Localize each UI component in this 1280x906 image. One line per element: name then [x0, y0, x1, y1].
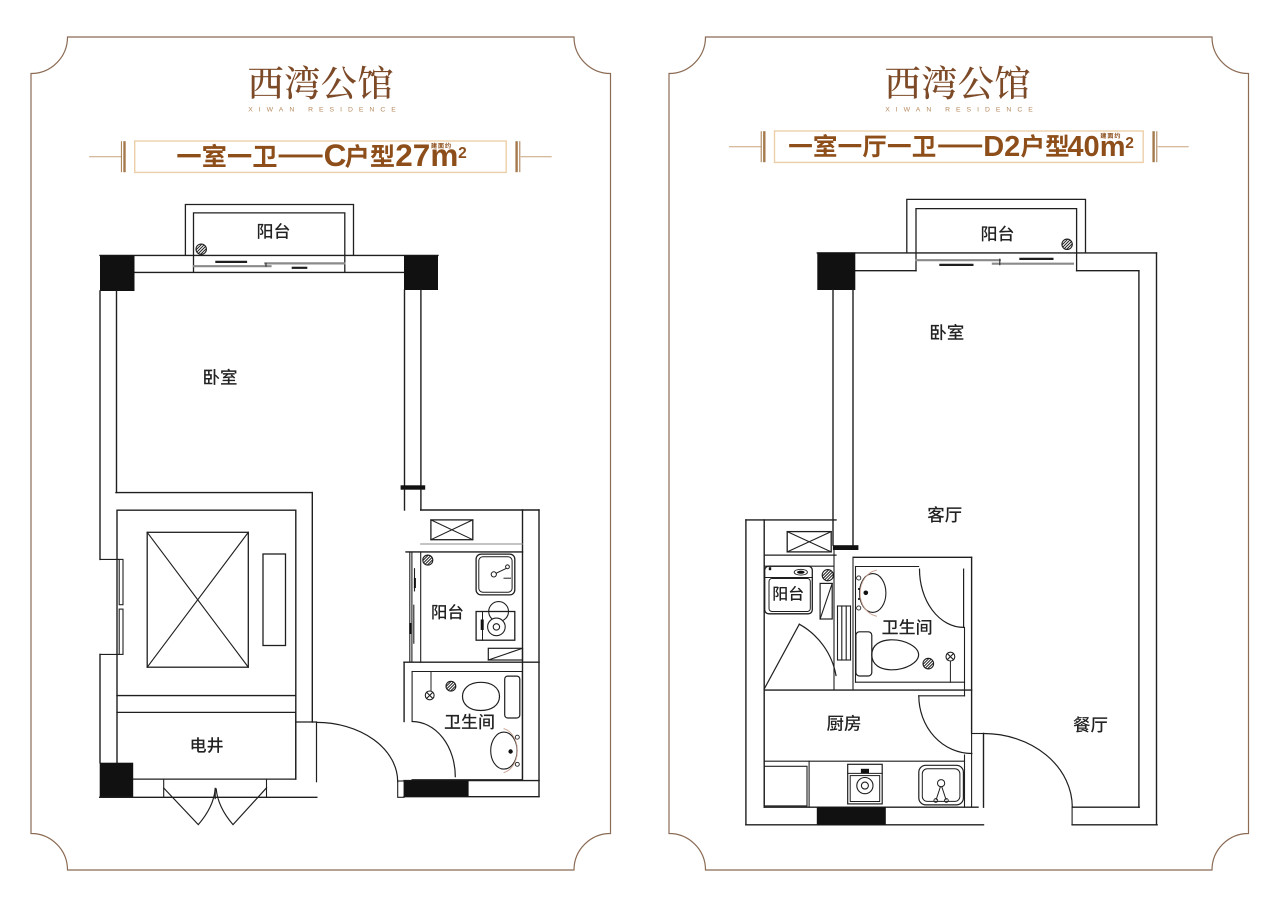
- svg-text:40: 40: [1067, 131, 1099, 163]
- svg-text:2: 2: [1125, 135, 1134, 152]
- svg-text:XIWAN RESIDENCE: XIWAN RESIDENCE: [248, 107, 402, 114]
- svg-text:27: 27: [395, 137, 430, 173]
- svg-text:C: C: [324, 137, 347, 173]
- svg-text:m: m: [430, 137, 458, 173]
- svg-text:2: 2: [458, 145, 467, 162]
- svg-text:D2: D2: [983, 131, 1020, 163]
- svg-text:XIWAN RESIDENCE: XIWAN RESIDENCE: [885, 107, 1039, 114]
